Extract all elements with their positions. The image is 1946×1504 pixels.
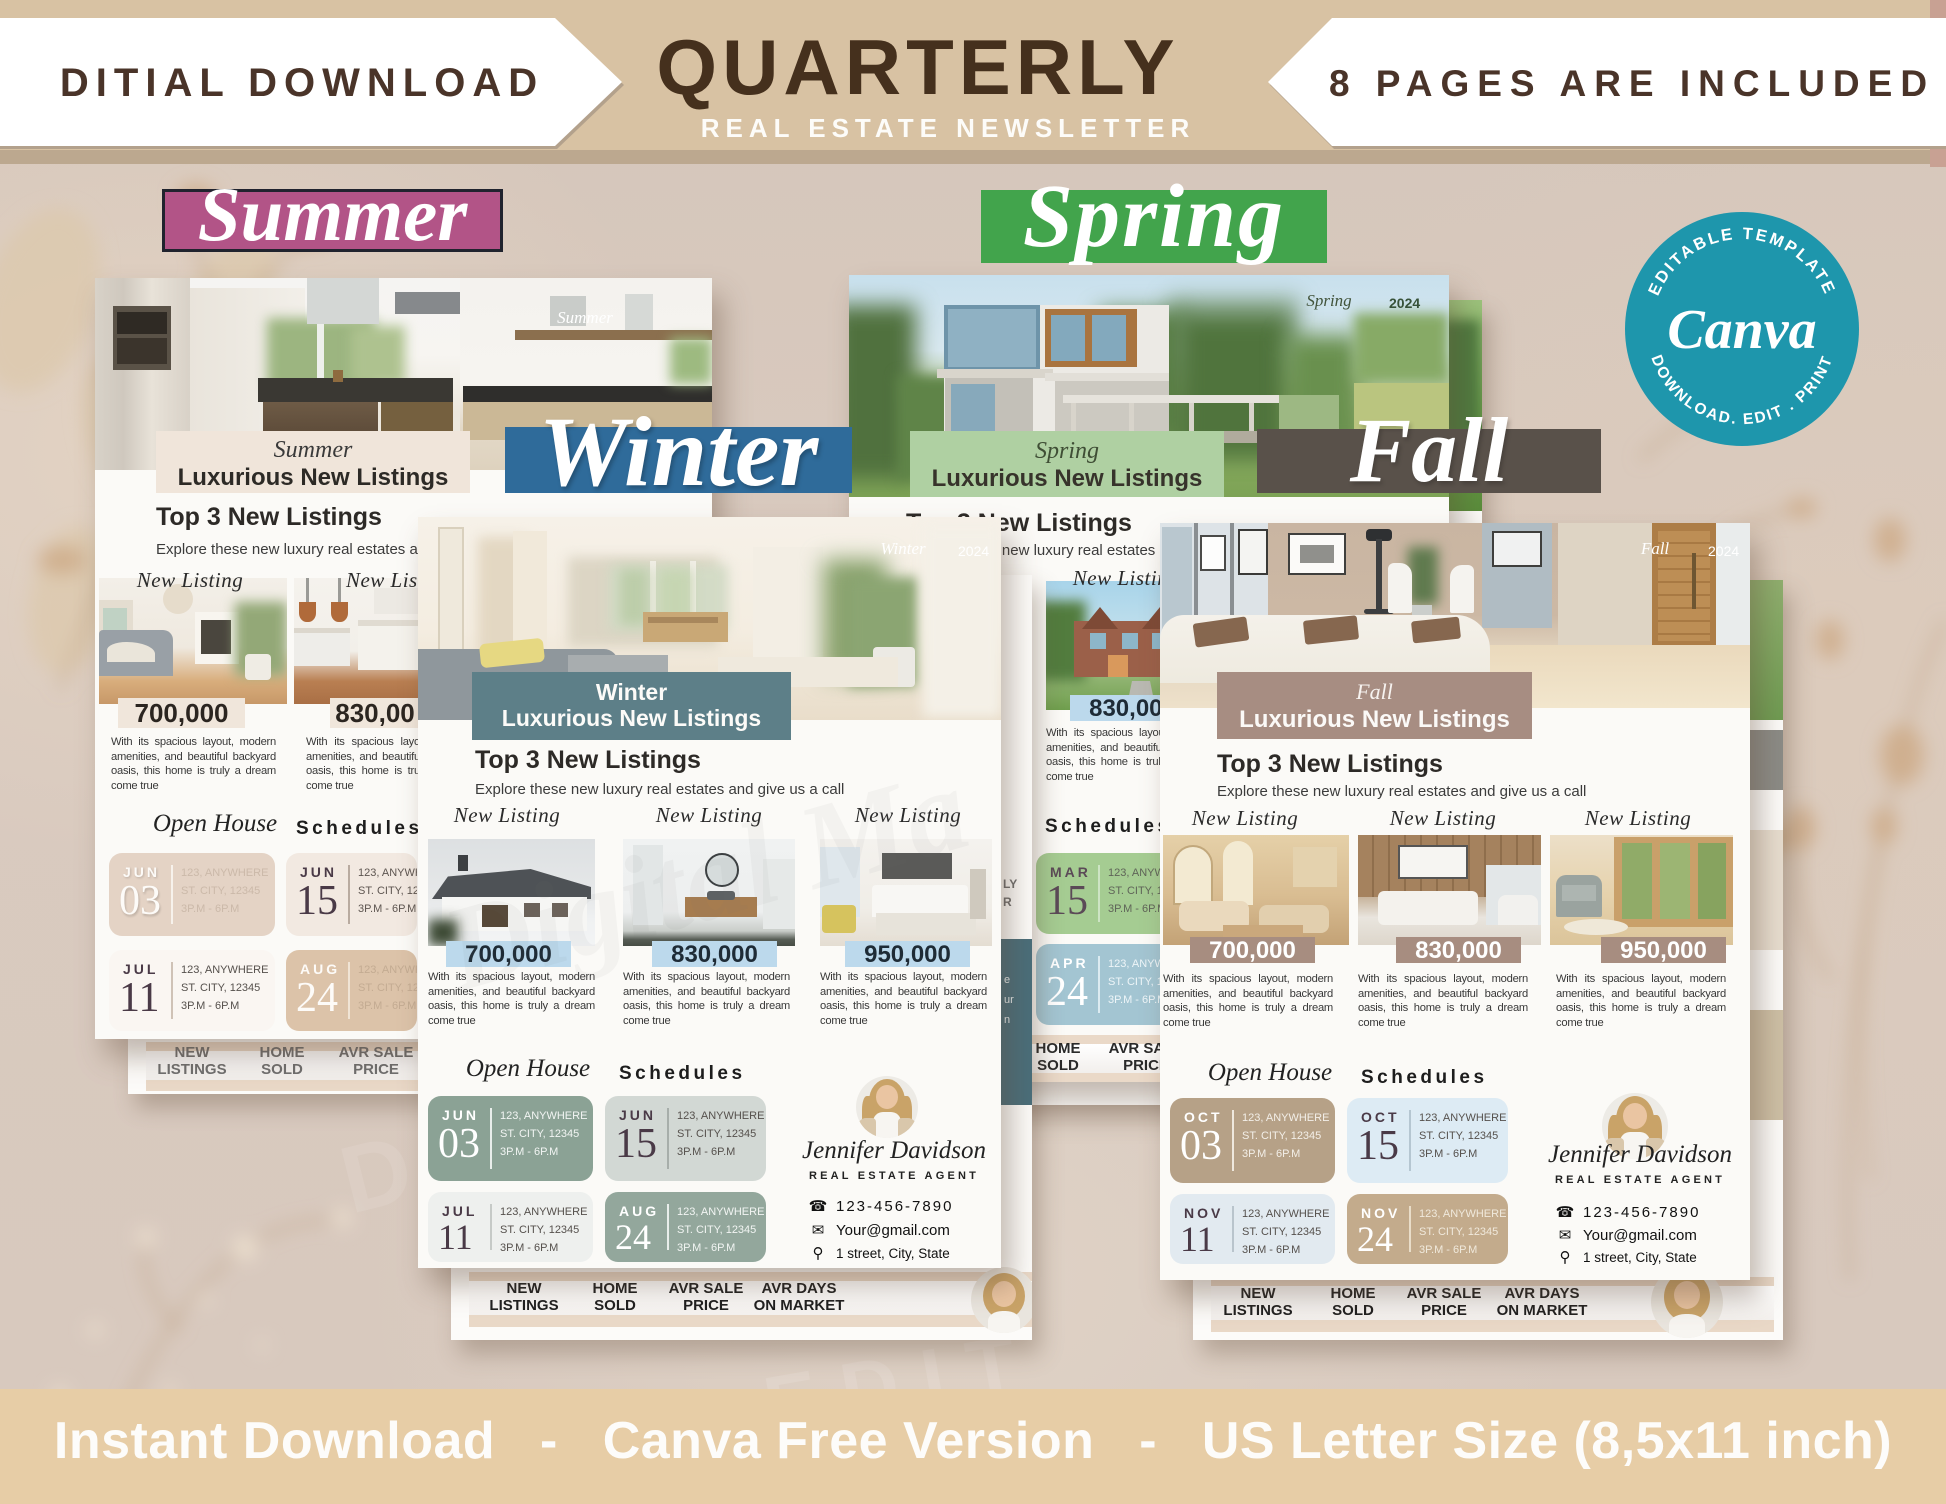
svg-text:Canva: Canva [1667,299,1816,361]
